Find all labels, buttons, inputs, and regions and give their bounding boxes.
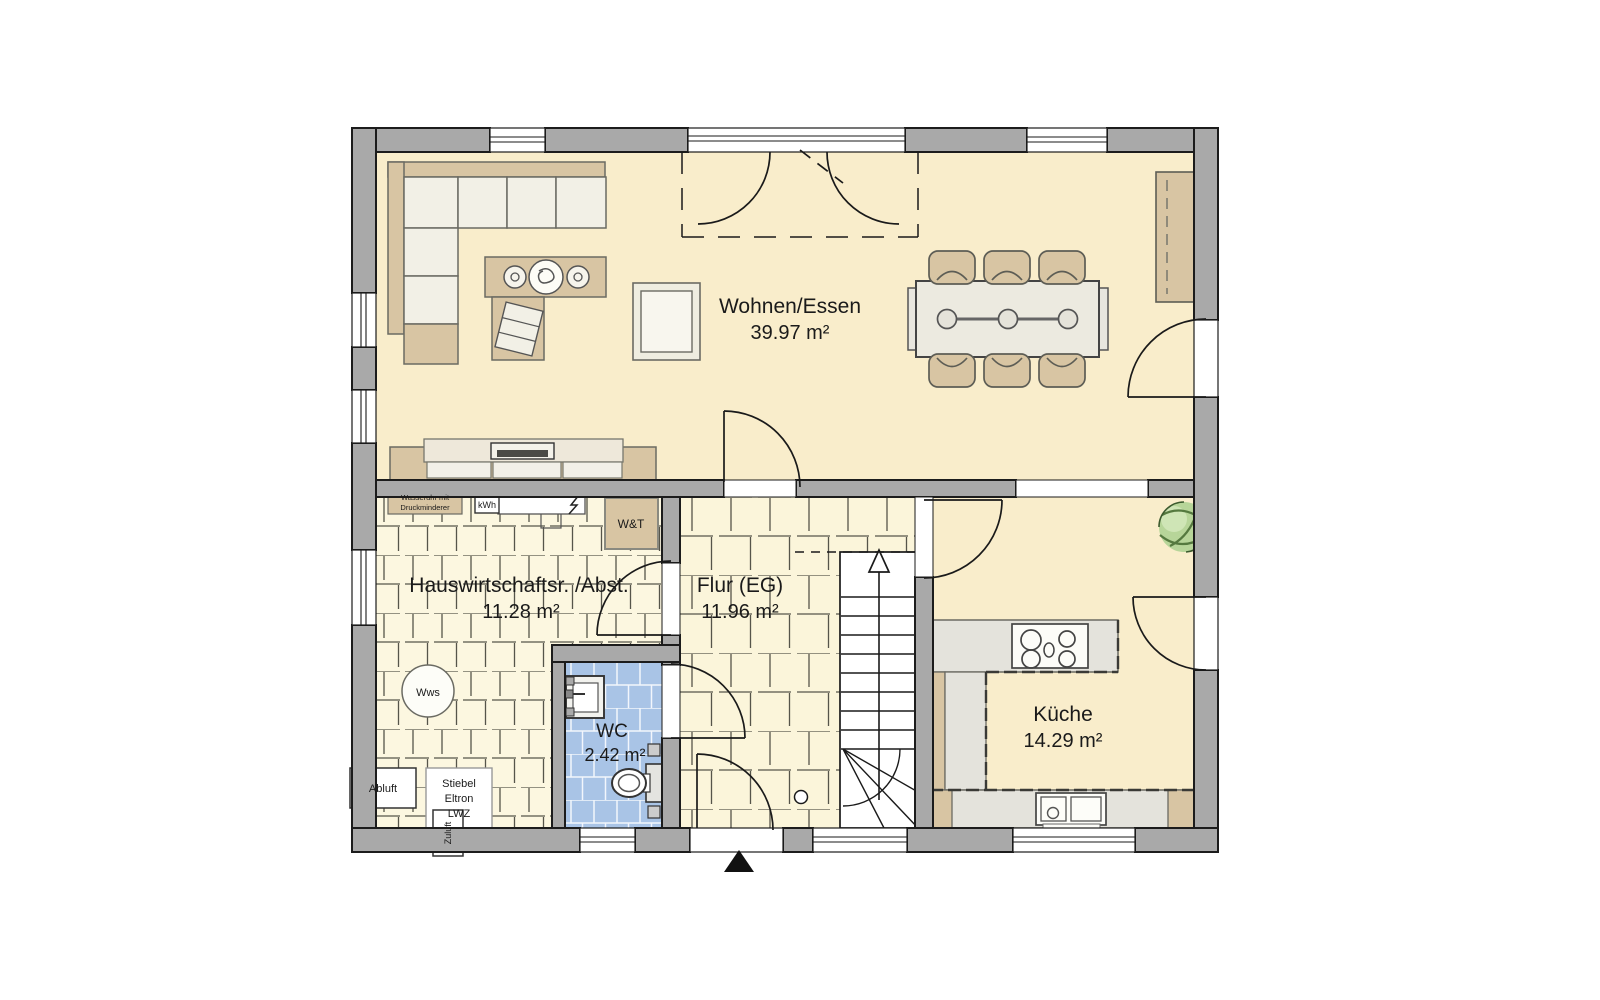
label-water-meter-2: Druckminderer <box>400 503 450 512</box>
window-bottom-kitchen <box>1013 828 1135 852</box>
sideboard <box>1156 172 1194 302</box>
kitchen-sink <box>1036 793 1106 831</box>
label-zuluft: Zuluft <box>443 821 453 844</box>
label-living-area: 39.97 m² <box>751 322 830 344</box>
wc-sink <box>564 676 604 718</box>
window-left-1 <box>352 293 376 347</box>
label-stiebel-2: Eltron <box>445 793 474 805</box>
label-utility-area: 11.28 m² <box>482 601 560 623</box>
passage-living-kitchen <box>1016 480 1148 497</box>
label-hall-area: 11.96 m² <box>701 601 779 623</box>
label-hall-name: Flur (EG) <box>697 574 783 597</box>
label-kitchen-name: Küche <box>1033 703 1093 726</box>
door-opening-entrance <box>690 828 783 852</box>
label-kitchen-area: 14.29 m² <box>1024 730 1103 752</box>
door-opening-wc <box>662 665 680 738</box>
label-utility-name: Hauswirtschaftsr. /Abst. <box>409 574 628 597</box>
door-opening-kitchen-hall <box>915 497 933 577</box>
window-bottom-wc <box>580 828 635 852</box>
door-opening-kitchen-east <box>1194 597 1218 670</box>
window-left-2 <box>352 390 376 443</box>
label-living-name: Wohnen/Essen <box>719 295 861 318</box>
door-opening-living-east <box>1194 320 1218 397</box>
label-stiebel-1: Stiebel <box>442 778 476 790</box>
label-wws: Wws <box>416 687 440 699</box>
window-top-1 <box>490 128 545 152</box>
door-opening-utility <box>662 563 680 635</box>
armchair <box>633 283 700 360</box>
label-water-meter-1: Wasseruhr mit <box>401 493 450 502</box>
window-left-3 <box>352 550 376 625</box>
label-kwh: kWh <box>478 500 496 510</box>
label-stiebel-3: LWZ <box>448 808 471 820</box>
label-abluft: Abluft <box>369 783 397 795</box>
tv-lowboard <box>390 439 656 480</box>
cooktop <box>1012 624 1088 668</box>
label-wt: W&T <box>618 517 645 531</box>
door-opening-living-hall <box>724 480 796 497</box>
window-terrace-door <box>688 128 905 152</box>
label-wc-area: 2.42 m² <box>584 745 645 765</box>
dining-table <box>908 281 1108 357</box>
label-wc-name: WC <box>596 721 628 742</box>
window-bottom-stair <box>813 828 907 852</box>
floor-plan: Wohnen/Essen 39.97 m² Hauswirtschaftsr. … <box>0 0 1600 1000</box>
entrance-arrow <box>724 850 754 872</box>
window-top-2 <box>1027 128 1107 152</box>
floor-plan-svg: Wohnen/Essen 39.97 m² Hauswirtschaftsr. … <box>0 0 1600 1000</box>
